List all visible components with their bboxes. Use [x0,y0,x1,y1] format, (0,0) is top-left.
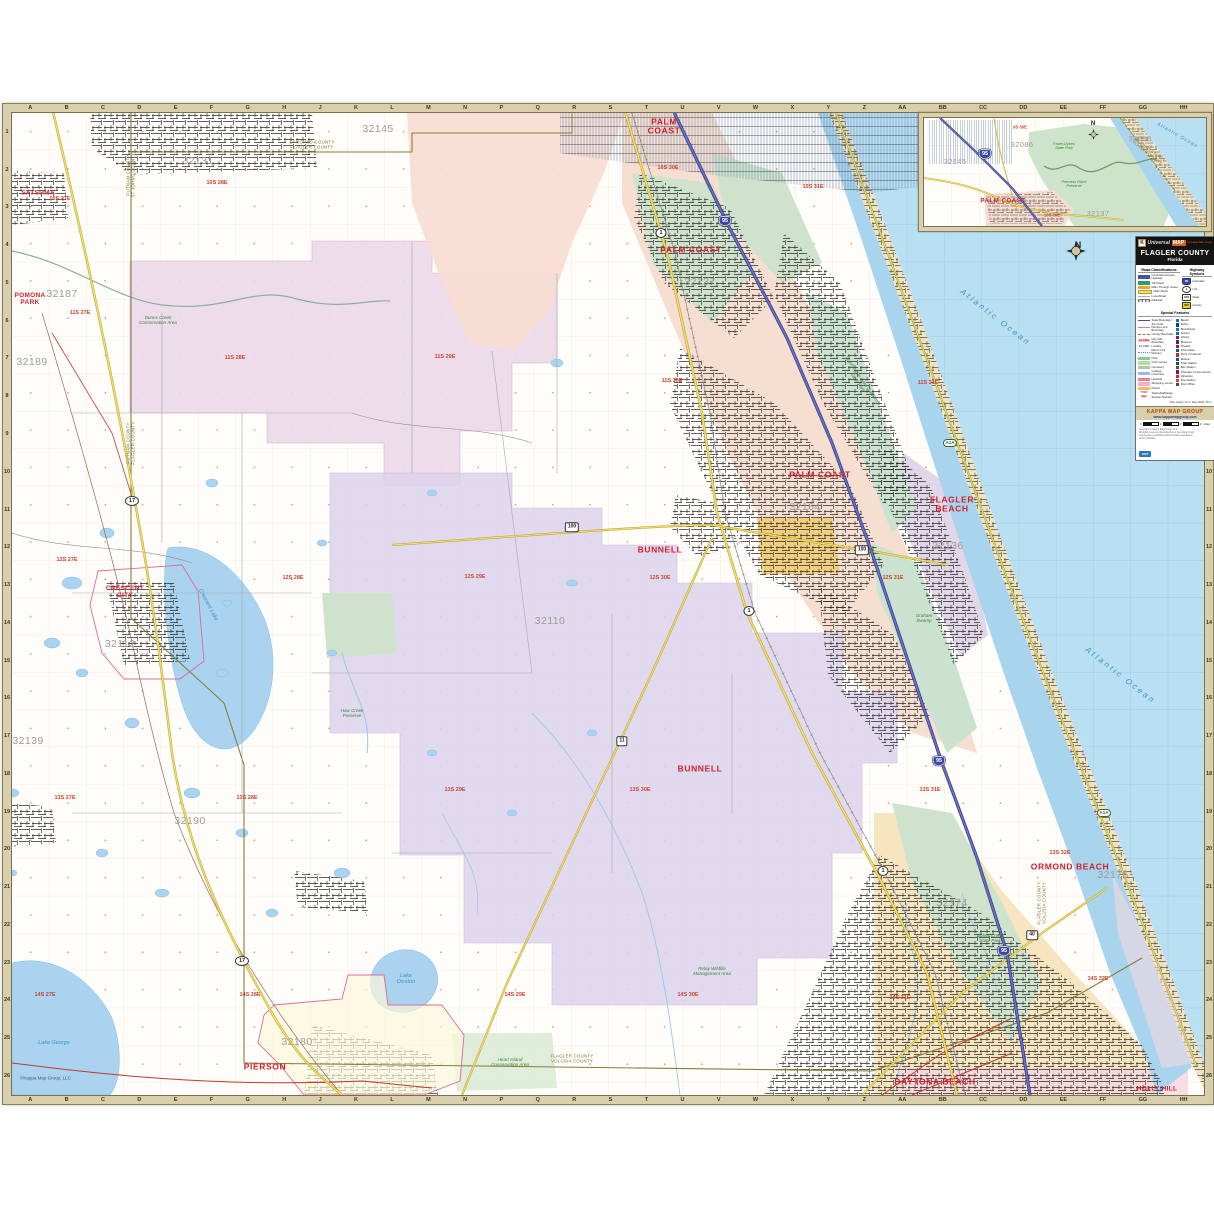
feature-label: College, University [1152,370,1175,376]
grid-number: 13 [4,582,10,588]
grid-letter: W [753,1097,758,1103]
grid-letter: G [246,105,250,111]
grid-letter: A [28,1097,32,1103]
grid-letter: V [717,105,721,111]
grid-letter: E [174,105,178,111]
grid-number: 13 [1206,582,1212,588]
grid-number: 6 [5,318,8,324]
highway-shield-icon: 1 [1182,286,1191,293]
grid-letter: DD [1019,105,1027,111]
grid-letter: F [210,105,213,111]
publisher-banner: KAPPA MAP GROUP www.kappamapgroup.com [1136,406,1214,420]
feature-symbol-icon [1176,319,1179,322]
legend-feature-row: 6Section Number [1138,396,1174,400]
grid-number: 17 [1206,733,1212,739]
grid-number: 5 [5,280,8,286]
grid-letter: L [390,1097,393,1103]
grid-letter: Z [863,1097,866,1103]
feature-symbol-icon [1176,349,1179,352]
grid-letter: G [246,1097,250,1103]
road-class-swatch [1138,275,1150,279]
feature-label: Golf Course [1152,361,1167,364]
grid-letter: T [645,105,648,111]
feature-swatch: 6 [1138,396,1150,400]
main-map: N PALM COASTPALM COASTPALM COASTBUNNELLB… [12,113,1204,1095]
scale-tick: 1 [1160,422,1162,426]
grid-number: 21 [1206,884,1212,890]
road-classifications-list: Controlled Access HighwayToll RoadMain T… [1138,274,1180,302]
grid-letter: P [500,1097,504,1103]
grid-number: 7 [5,355,8,361]
feature-symbol-icon [1176,336,1179,339]
legend-feature-row: Minor Civil Division [1138,349,1174,355]
highway-label: County [1193,304,1202,307]
grid-number: 16 [4,695,10,701]
legend-symbol-row: Bus Station [1176,366,1212,369]
grid-letter: D [137,105,141,111]
map-sheet: ABCDEFGHJKLMNPQRSTUVWXYZAABBCCDDEEFFGGHH… [2,103,1214,1105]
grid-letter: Q [536,1097,540,1103]
brand-universal: Universal [1148,240,1171,246]
highway-label: Interstate [1193,280,1205,283]
brand-map: MAP [1172,240,1186,246]
feature-label: Park [1152,357,1158,360]
grid-letter: BB [939,1097,947,1103]
feature-swatch [1138,327,1150,328]
grid-number: 3 [5,204,8,210]
legend-road-class-row: Railroad [1138,299,1180,302]
feature-label: Township/Range [1152,392,1173,395]
highway-shield-icon: 100 [1182,294,1191,301]
grid-number: 23 [4,960,10,966]
grid-number: 21 [4,884,10,890]
road-class-swatch [1138,281,1150,285]
grid-letter: U [680,1097,684,1103]
feature-label: Zip Code Number and Boundary [1152,323,1175,332]
road-class-label: Main Road [1154,290,1168,293]
feature-swatch: CLARK [1138,339,1150,343]
grid-numbers-left: 1234567891011121314151617181920212223242… [2,113,12,1095]
grid-number: 24 [1206,997,1212,1003]
legend-feature-row: CLARKCity and Boundary [1138,338,1174,344]
grid-letter: Y [827,105,831,111]
grid-letter: L [390,105,393,111]
legend-body: Road Classifications Controlled Access H… [1136,265,1214,407]
feature-symbol-icon [1176,328,1179,331]
grid-number: 15 [4,658,10,664]
grid-number: 15 [1206,658,1212,664]
grid-number: 9 [5,431,8,437]
legend-copyright: Copyright © Kappa Map Group, LLCAll righ… [1136,427,1214,442]
grid-letter: S [609,105,613,111]
grid-letter: AA [898,1097,906,1103]
grid-number: 25 [4,1035,10,1041]
road-class-swatch [1138,286,1150,289]
feature-swatch [1138,366,1150,370]
grid-letter: CC [979,1097,987,1103]
symbol-label: Point of Interest [1181,353,1201,356]
feature-symbol-icon [1176,345,1179,348]
grid-number: 18 [1206,771,1212,777]
grid-letter: HH [1180,1097,1188,1103]
special-features-right: BeachPoliceBoat RampSchoolLibraryMuseumT… [1176,318,1212,401]
grid-number: 14 [4,620,10,626]
feature-label: Section Number [1152,396,1173,399]
feature-swatch [1138,361,1150,365]
map-title: FLAGLER COUNTY [1136,250,1214,257]
scale-bar: 0123miles [1136,420,1214,427]
symbol-label: Bus Station [1181,366,1196,369]
grid-letter: EE [1060,1097,1067,1103]
grid-number: 8 [5,393,8,399]
highway-shield-icon: 95 [1182,278,1191,285]
north-arrow: N [1066,241,1090,249]
grid-number: 2 [5,167,8,173]
grid-letter: K [354,1097,358,1103]
feature-swatch [1138,378,1150,382]
grid-number: 20 [1206,846,1212,852]
grid-letter: C [101,105,105,111]
feature-symbol-icon [1176,362,1179,365]
grid-number: 4 [5,242,8,248]
inset-map-canvas: N PALM COAST321453208632137320809S 30E10… [924,118,1206,226]
legend-highway-row: 100State [1182,294,1212,301]
grid-letter: B [65,1097,69,1103]
grid-letter: C [101,1097,105,1103]
scale-bar-segment [1184,423,1198,425]
grid-letter: U [680,105,684,111]
feature-label: Minor Civil Division [1152,349,1175,355]
kappa-logo-icon: K [1138,239,1146,247]
feature-swatch [1138,320,1150,321]
legend-feature-row: Zip Code Number and Boundary [1138,323,1174,332]
product-page: ABCDEFGHJKLMNPQRSTUVWXYZAABBCCDDEEFFGGHH… [0,0,1214,1214]
brand-tagline: by Kappa Map Group [1187,241,1212,244]
special-features-heading: Special Features [1138,311,1212,317]
north-arrow-icon [1066,241,1086,261]
legend-title-bar: FLAGLER COUNTY Florida [1136,248,1214,265]
highway-symbols-heading: Highway Symbols [1182,268,1212,278]
grid-number: 19 [4,809,10,815]
grid-letter: J [319,105,322,111]
feature-symbol-icon [1176,353,1179,356]
grid-letter: N [463,105,467,111]
legend-highway-row: 305County [1182,302,1212,309]
grid-letter: F [210,1097,213,1103]
legend-feature-row: College, University [1138,370,1174,376]
grid-letter: Q [536,105,540,111]
grid-letter: HH [1180,105,1188,111]
grid-letter: DD [1019,1097,1027,1103]
publisher-logo: K Universal MAP by Kappa Map Group [1136,237,1214,248]
grid-number: 20 [4,846,10,852]
feature-symbol-icon [1176,370,1179,373]
publisher-url: www.kappamapgroup.com [1136,415,1214,419]
grid-letter: EE [1060,105,1067,111]
grid-letter: R [572,105,576,111]
feature-swatch: CLARK [1138,345,1150,349]
grid-letter: V [717,1097,721,1103]
scale-tick: 0 [1140,422,1142,426]
map-subtitle: Florida [1136,257,1214,262]
road-class-label: Railroad [1152,299,1163,302]
grid-letter: A [28,105,32,111]
legend-road-class-row: Controlled Access Highway [1138,274,1180,280]
grid-number: 11 [1206,507,1212,513]
grid-letter: X [790,105,794,111]
feature-swatch [1138,372,1150,376]
feature-swatch [1138,382,1150,386]
copyright-line: of the publisher. [1139,437,1211,440]
grid-number: 1 [5,129,8,135]
feature-symbol-icon [1176,366,1179,369]
grid-letter: S [609,1097,613,1103]
grid-letter: Y [827,1097,831,1103]
scale-bar-segment [1144,423,1158,425]
grid-letter: M [426,105,431,111]
grid-letter: D [137,1097,141,1103]
main-map-canvas [12,113,1204,1095]
legend-highway-row: 95Interstate [1182,278,1212,285]
feature-swatch [1138,352,1150,353]
grid-number: 22 [1206,922,1212,928]
grid-letter: E [174,1097,178,1103]
road-class-swatch [1138,296,1150,297]
grid-letter: T [645,1097,648,1103]
grid-number: 24 [4,997,10,1003]
grid-letter: H [282,105,286,111]
grid-number: 26 [1206,1073,1212,1079]
grid-letter: K [354,105,358,111]
inset-svg [924,118,1206,226]
grid-letter: X [790,1097,794,1103]
grid-number: 22 [4,922,10,928]
scale-unit: miles [1203,422,1210,426]
grid-number: 12 [1206,544,1212,550]
grid-letter: H [282,1097,286,1103]
feature-label: Shopping Center [1152,382,1174,385]
feature-label: Hospital [1152,378,1162,381]
grid-number: 25 [1206,1035,1212,1041]
feature-symbol-icon [1176,332,1179,335]
grid-letter: B [65,105,69,111]
legend-symbol-row: Library [1176,336,1212,339]
grid-letter: R [572,1097,576,1103]
grid-letter: J [319,1097,322,1103]
grid-number: 18 [4,771,10,777]
feature-symbol-icon [1176,358,1179,361]
data-source-chip: GDT [1139,451,1151,457]
scale-tick: 3 [1200,422,1202,426]
grid-letter: FF [1099,105,1106,111]
grid-letter: CC [979,105,987,111]
grid-letter: GG [1139,105,1148,111]
highway-symbols-list: 95Interstate1U.S.100State305County [1182,278,1212,309]
inset-map: N PALM COAST321453208632137320809S 30E10… [918,112,1212,232]
legend-panel: K Universal MAP by Kappa Map Group FLAGL… [1136,237,1214,460]
feature-symbol-icon [1176,375,1179,378]
grid-number: 23 [1206,960,1212,966]
grid-letter: BB [939,105,947,111]
feature-symbol-icon [1176,379,1179,382]
scale-bar-segment [1164,423,1178,425]
feature-label: Resort [1152,387,1161,390]
inset-north-arrow-icon [1088,129,1099,140]
road-class-swatch [1138,299,1150,302]
grid-letter: P [500,105,504,111]
grid-letter: W [753,105,758,111]
inset-north-label: N [1086,122,1100,127]
grid-letter: N [463,1097,467,1103]
highway-label: State [1193,296,1200,299]
grid-number: 26 [4,1073,10,1079]
grid-number: 10 [1206,469,1212,475]
legend-symbol-row: Post Office [1176,383,1212,386]
feature-symbol-icon [1176,383,1179,386]
feature-label: City and Boundary [1152,338,1175,344]
grid-letter: FF [1099,1097,1106,1103]
grid-number: 17 [4,733,10,739]
size-note: Map Height: 40 in. Map Width: 48 in. [1138,401,1212,404]
grid-number: 10 [4,469,10,475]
feature-symbol-icon [1176,323,1179,326]
highway-shield-icon: 305 [1182,302,1191,309]
road-class-swatch [1138,290,1152,294]
grid-number: 11 [4,507,10,513]
feature-swatch [1138,334,1150,335]
grid-letter: AA [898,105,906,111]
highway-label: U.S. [1193,288,1199,291]
grid-number: 12 [4,544,10,550]
symbol-label: Post Office [1181,383,1195,386]
special-features-left: State BoundaryZip Code Number and Bounda… [1138,318,1174,401]
grid-letters-bottom: ABCDEFGHJKLMNPQRSTUVWXYZAABBCCDDEEFFGGHH [12,1095,1204,1105]
feature-swatch [1138,357,1150,361]
road-class-label: Controlled Access Highway [1152,274,1181,280]
symbol-label: Library [1181,336,1190,339]
symbol-label: Police [1181,323,1189,326]
grid-number: 16 [1206,695,1212,701]
inset-north-arrow: N [1086,122,1100,145]
legend-highway-row: 1U.S. [1182,286,1212,293]
grid-letter: M [426,1097,431,1103]
scale-tick: 2 [1180,422,1182,426]
grid-number: 19 [1206,809,1212,815]
grid-number: 14 [1206,620,1212,626]
grid-letter: GG [1139,1097,1148,1103]
grid-letter: Z [863,105,866,111]
feature-symbol-icon [1176,340,1179,343]
